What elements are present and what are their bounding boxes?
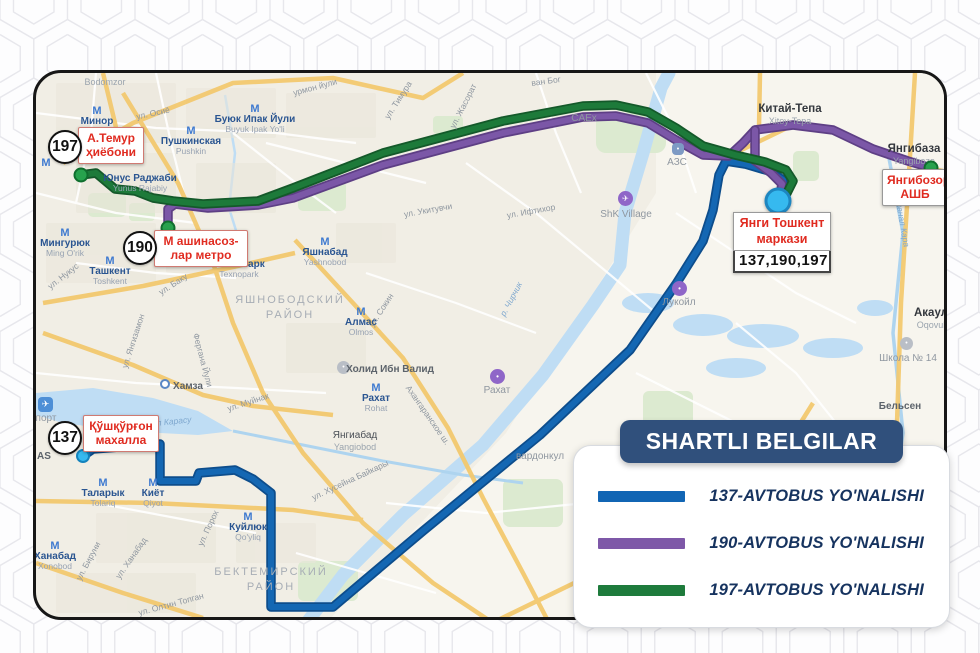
metro-icon: М [302,237,347,247]
street-label: ул. Янгизамон [120,313,147,370]
route-color-bar [598,538,685,549]
place-label: Бельсен [879,401,921,413]
metro-icon: М [89,256,130,266]
street-label: ул. Бируни [74,540,103,582]
terminal-label: Янги Тошкент маркази 137,190,197 [733,212,831,273]
metro-station-label: М Ташкент Toshkent [89,256,130,286]
street-label: ул. Баку [157,271,189,297]
legend-title: SHARTLI BELGILAR [620,420,903,463]
metro-station-label: М Пушкинская Pushkin [161,126,221,156]
metro-icon: М [229,512,267,522]
place-label: ShK Village [600,209,652,221]
poi-icon: • [672,281,687,296]
metro-station-label: М Мингурюк Ming O'rik [40,228,90,258]
metro-icon: М [34,541,76,551]
poi-icon: ✈ [618,191,633,206]
metro-station-label: М Буюк Ипак Йули Buyuk Ipak Yo'li [215,104,296,134]
metro-icon: М [82,478,125,488]
place-label: Рахат [484,385,511,397]
place-label: Bodomzor [84,77,125,89]
metro-icon: М [362,383,390,393]
metro-icon: М [40,228,90,238]
legend-row: 190-AVTOBUS YO'NALISHI [598,531,924,555]
legend-route-label: 190-AVTOBUS YO'NALISHI [709,534,924,553]
metro-station-label: М Яшнабад Yashnobod [302,237,347,267]
poi-icon: • [900,337,913,350]
poi-icon: М [41,157,50,169]
metro-station-label: М Куйлюк Qo'yliq [229,512,267,542]
street-label: урмон йули [292,76,338,97]
route-number-badge: 197 [48,130,82,164]
metro-station-label: М Ханабад Xonobod [34,541,76,571]
route-color-bar [598,491,685,502]
street-label: Ахангаранское ш. [404,383,452,446]
legend-row: 137-AVTOBUS YO'NALISHI [598,484,924,508]
stop-name-label: Қўшқўрғон махалла [83,415,159,452]
place-label: Холид Ибн Валид [346,364,434,376]
metro-station-label: М Киёт Qiyot [142,478,165,508]
legend-panel: 137-AVTOBUS YO'NALISHI 190-AVTOBUS YO'NA… [573,445,950,628]
place-label: порт [36,413,57,425]
street-label: ул. Нукус [46,261,81,291]
stop-name-label: М ашинасоз- лар метро [154,230,248,267]
place-label: CAEx [571,113,597,125]
legend-route-label: 137-AVTOBUS YO'NALISHI [709,487,924,506]
legend-row: 197-AVTOBUS YO'NALISHI [598,578,924,602]
street-label: ул. Порох [195,509,220,548]
metro-station-label: М Таларык Tolariq [82,478,125,508]
route-endpoint-dot [74,168,89,183]
legend-route-label: 197-AVTOBUS YO'NALISHI [709,581,924,600]
metro-station-label: М Юнус Раджаби Yunus Rajabiy [103,173,177,193]
street-label: Фергана Йули [191,332,215,388]
place-label: АЗС [667,157,687,169]
street-label: ул. Тимура [382,79,414,120]
metro-station-label: М Алмас Olmos [345,307,377,337]
stop-name-label: А.Темур ҳиёбони [78,127,144,164]
place-label: Акаул Oqovul [914,307,947,331]
place-label: Хамза [173,381,203,393]
place-label: Янгиабад Yangiobod [333,430,377,452]
place-label: вардонкул [516,451,564,463]
district-label: БЕКТЕМИРСКИЙ РАЙОН [214,565,327,595]
route-endpoint-dot [765,188,792,215]
poi-icon: ✈ [38,397,53,412]
place-label: Китай-Тепа Xitoy-Tepa [758,103,821,127]
street-label: ул. Муйнак [226,391,270,414]
street-label: канал Кара [894,202,912,247]
street-label: ул. Укитувчи [403,201,453,219]
street-label: ул. Хусейна Байкары [310,458,390,502]
street-label: ул. Осиё [135,105,170,122]
poi-icon [160,379,170,389]
street-label: ван Бог [531,74,562,88]
metro-station-label: М Рахат Rohat [362,383,390,413]
route-color-bar [598,585,685,596]
metro-icon: М [215,104,296,114]
metro-icon: М [142,478,165,488]
poster: М Минор Minor М Пушкинская Pushkin М Бую… [0,0,980,653]
poi-icon: • [490,369,505,384]
metro-icon: М [345,307,377,317]
terminal-route-numbers: 137,190,197 [733,251,831,273]
terminal-title: Янги Тошкент маркази [733,212,831,251]
metro-icon: М [161,126,221,136]
place-label: Школа № 14 [879,353,937,365]
district-label: ЯШНОБОДСКИЙ РАЙОН [235,293,345,323]
metro-icon: М [81,106,114,116]
place-label: Лукойл [662,297,695,309]
route-number-badge: 137 [48,421,82,455]
street-label: ул. Ифтихор [506,202,556,220]
street-label: ул. Олтин Топган [137,590,204,617]
stop-name-label: Янгибозор АШБ [882,169,947,206]
place-label: AS [37,451,51,463]
route-number-badge: 190 [123,231,157,265]
poi-icon: • [672,143,684,155]
street-label: р. Чирчик [498,280,524,318]
street-label: ул. Ханабад [113,535,149,580]
street-label: ул. Жасорат [448,82,479,130]
